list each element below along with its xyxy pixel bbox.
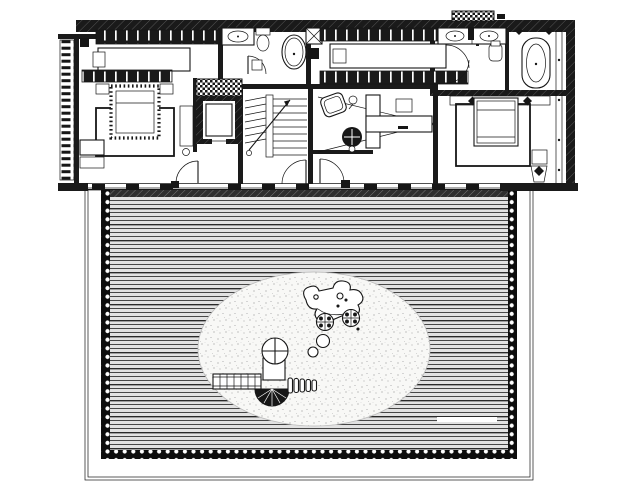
laptop <box>398 126 408 129</box>
shelf <box>252 60 262 70</box>
fixture-dark <box>468 27 474 40</box>
west-wall <box>74 36 79 183</box>
roof-deck <box>85 188 533 480</box>
floor-plan-drawing <box>0 0 621 498</box>
shaft-closet <box>196 79 242 96</box>
elevator-car <box>206 104 232 136</box>
desk-l-shaped <box>366 116 432 132</box>
office-chair-base <box>349 146 355 152</box>
duct-solid <box>308 48 319 59</box>
nightstand-right <box>160 84 173 94</box>
island-seat <box>333 49 346 63</box>
toilet-master <box>489 44 502 61</box>
deck-threshold-strip <box>110 190 508 197</box>
lower-closet-strip <box>82 70 172 82</box>
nightstand-left <box>96 84 109 94</box>
dresser <box>98 48 190 71</box>
floor-lamp <box>349 96 357 104</box>
elevator-shaft <box>196 79 242 144</box>
toilet-tank <box>256 28 270 35</box>
roof-vent-cap <box>497 14 505 19</box>
newel <box>246 150 251 155</box>
desk-chair <box>93 52 105 67</box>
closet-island <box>330 44 446 68</box>
west-louver-band <box>60 40 74 180</box>
closet-strip-south <box>320 71 468 84</box>
lounge-chair-back <box>532 150 547 164</box>
toilet <box>257 35 269 51</box>
roof-vent <box>452 11 494 21</box>
bed-mattress <box>116 91 154 133</box>
wardrobe-strip <box>96 30 220 44</box>
tall-shelf <box>180 106 193 146</box>
bed-master <box>474 98 518 146</box>
stair-stringer <box>266 95 273 157</box>
bench-seat-2 <box>80 157 104 168</box>
plan-canvas <box>0 0 621 498</box>
side-chair <box>396 99 412 112</box>
oval-bathtub <box>282 35 306 69</box>
stool <box>183 149 190 156</box>
deck-bench <box>437 417 497 422</box>
bench-seat <box>80 140 104 155</box>
east-wall <box>566 20 575 186</box>
